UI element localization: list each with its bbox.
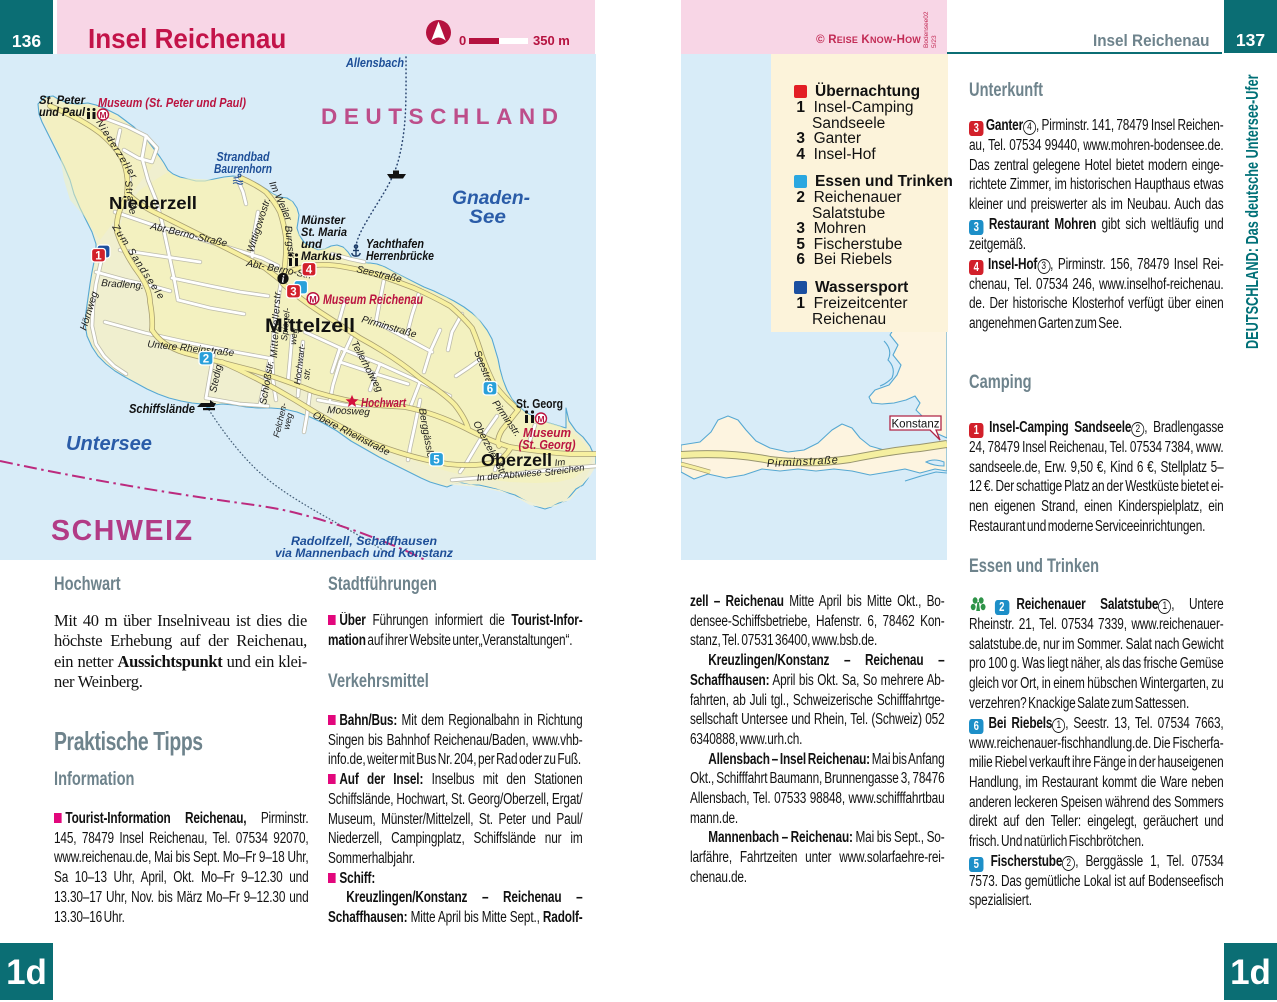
svg-text:5: 5 [433,455,440,467]
svg-text:Untersee: Untersee [66,433,152,455]
svg-text:Schiffslände: Schiffslände [129,402,195,416]
svg-text:und Paul: und Paul [39,105,86,119]
svg-text:SCHWEIZ: SCHWEIZ [51,515,192,547]
svg-text:1: 1 [95,251,102,263]
svg-text:(St. Georg): (St. Georg) [519,438,576,452]
svg-text:Markus: Markus [301,249,342,263]
svg-text:M: M [537,414,544,424]
svg-text:Konstanz: Konstanz [892,419,940,431]
svg-text:Niederzell: Niederzell [109,193,197,213]
svg-text:Allensbach: Allensbach [345,56,404,70]
svg-text:4: 4 [306,265,313,277]
svg-text:str.: str. [301,367,312,380]
svg-text:2: 2 [203,354,209,366]
svg-text:3: 3 [290,287,296,299]
svg-text:See: See [469,206,506,228]
svg-text:M: M [309,295,317,305]
svg-text:DEUTSCHLAND: DEUTSCHLAND [321,104,558,129]
svg-text:Herrenbrücke: Herrenbrücke [366,249,434,263]
svg-text:St. Georg: St. Georg [516,397,563,411]
svg-text:Museum Reichenau: Museum Reichenau [323,292,424,307]
svg-text:6: 6 [487,384,493,396]
svg-text:i: i [282,275,285,286]
svg-text:Moosweg: Moosweg [327,405,371,418]
svg-text:Museum (St. Peter und Paul): Museum (St. Peter und Paul) [98,95,246,110]
svg-text:weg: weg [288,328,299,345]
svg-text:M: M [99,110,106,120]
svg-text:Baurenhorn: Baurenhorn [214,162,272,176]
svg-text:via Mannenbach und Konstanz: via Mannenbach und Konstanz [275,546,453,560]
